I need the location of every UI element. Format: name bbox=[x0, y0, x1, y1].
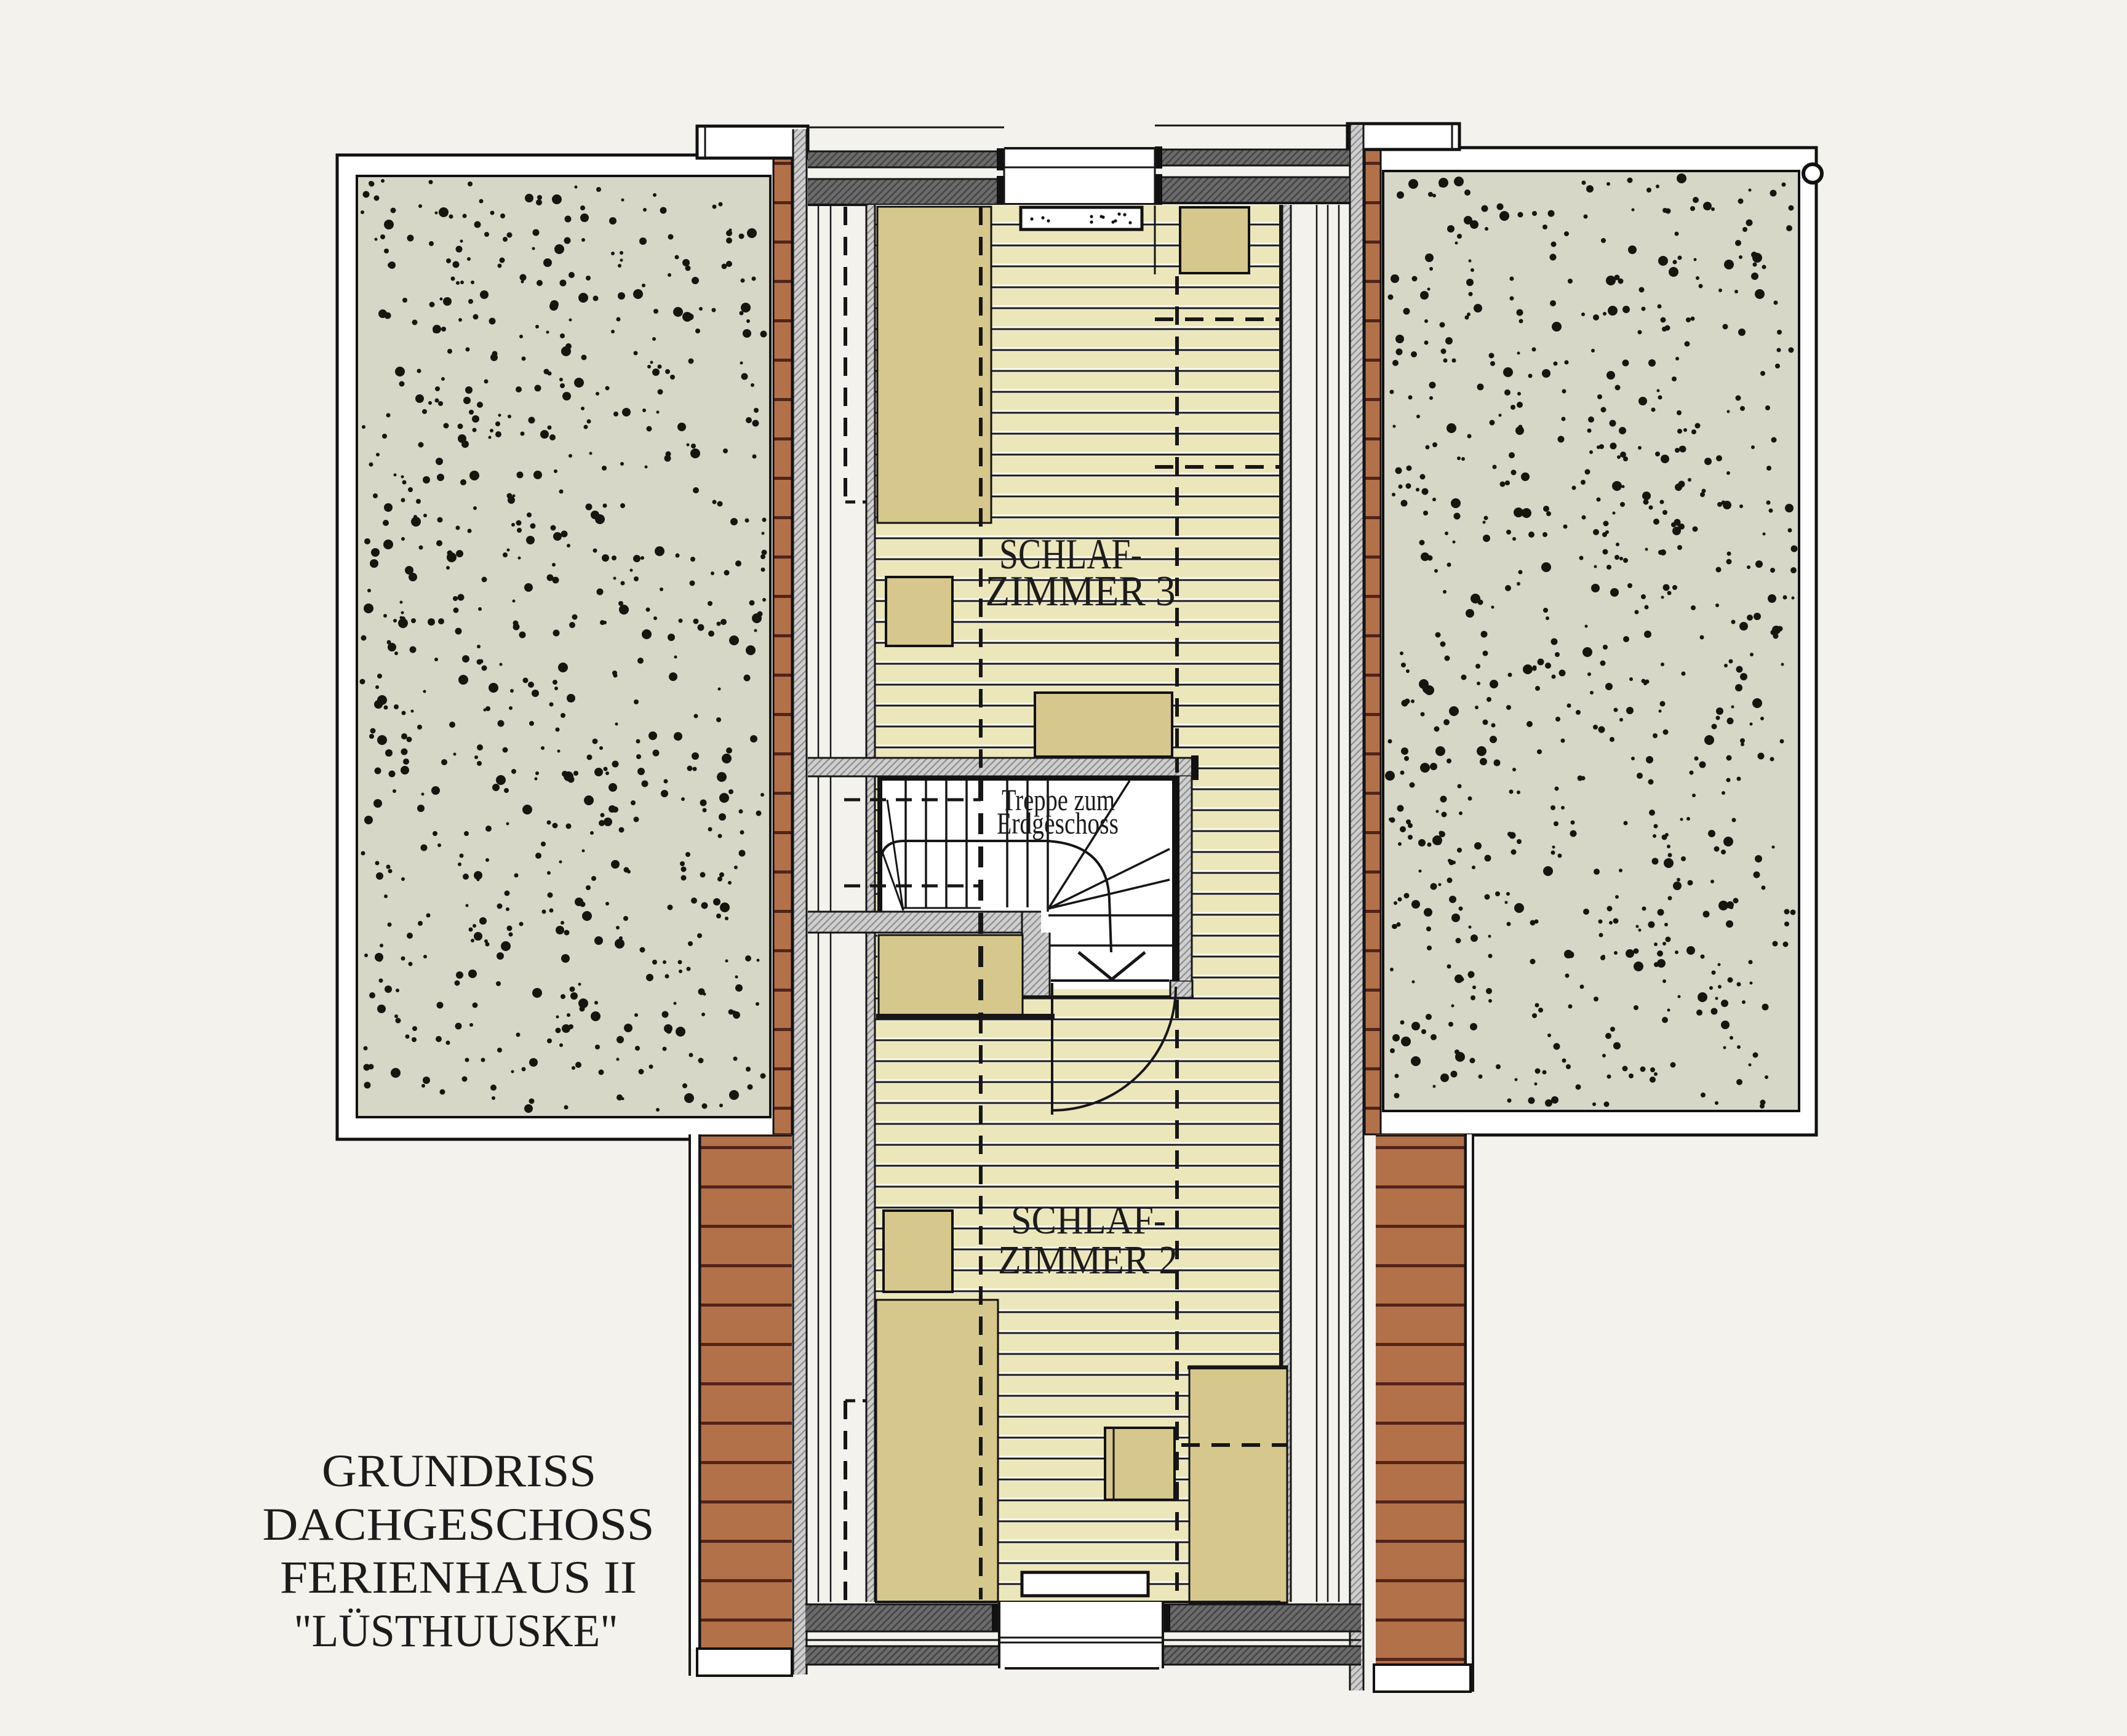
svg-text:SCHLAF-: SCHLAF- bbox=[1011, 1198, 1166, 1243]
svg-text:ZIMMER 3: ZIMMER 3 bbox=[986, 568, 1176, 615]
svg-text:FERIENHAUS II: FERIENHAUS II bbox=[280, 1552, 637, 1603]
svg-text:DACHGESCHOSS: DACHGESCHOSS bbox=[263, 1499, 655, 1550]
svg-text:"LÜSTHUUSKE": "LÜSTHUUSKE" bbox=[294, 1606, 618, 1657]
svg-text:Erdgeschoss: Erdgeschoss bbox=[997, 806, 1119, 840]
svg-text:GRUNDRISS: GRUNDRISS bbox=[322, 1446, 596, 1497]
svg-text:ZIMMER 2: ZIMMER 2 bbox=[998, 1238, 1178, 1283]
